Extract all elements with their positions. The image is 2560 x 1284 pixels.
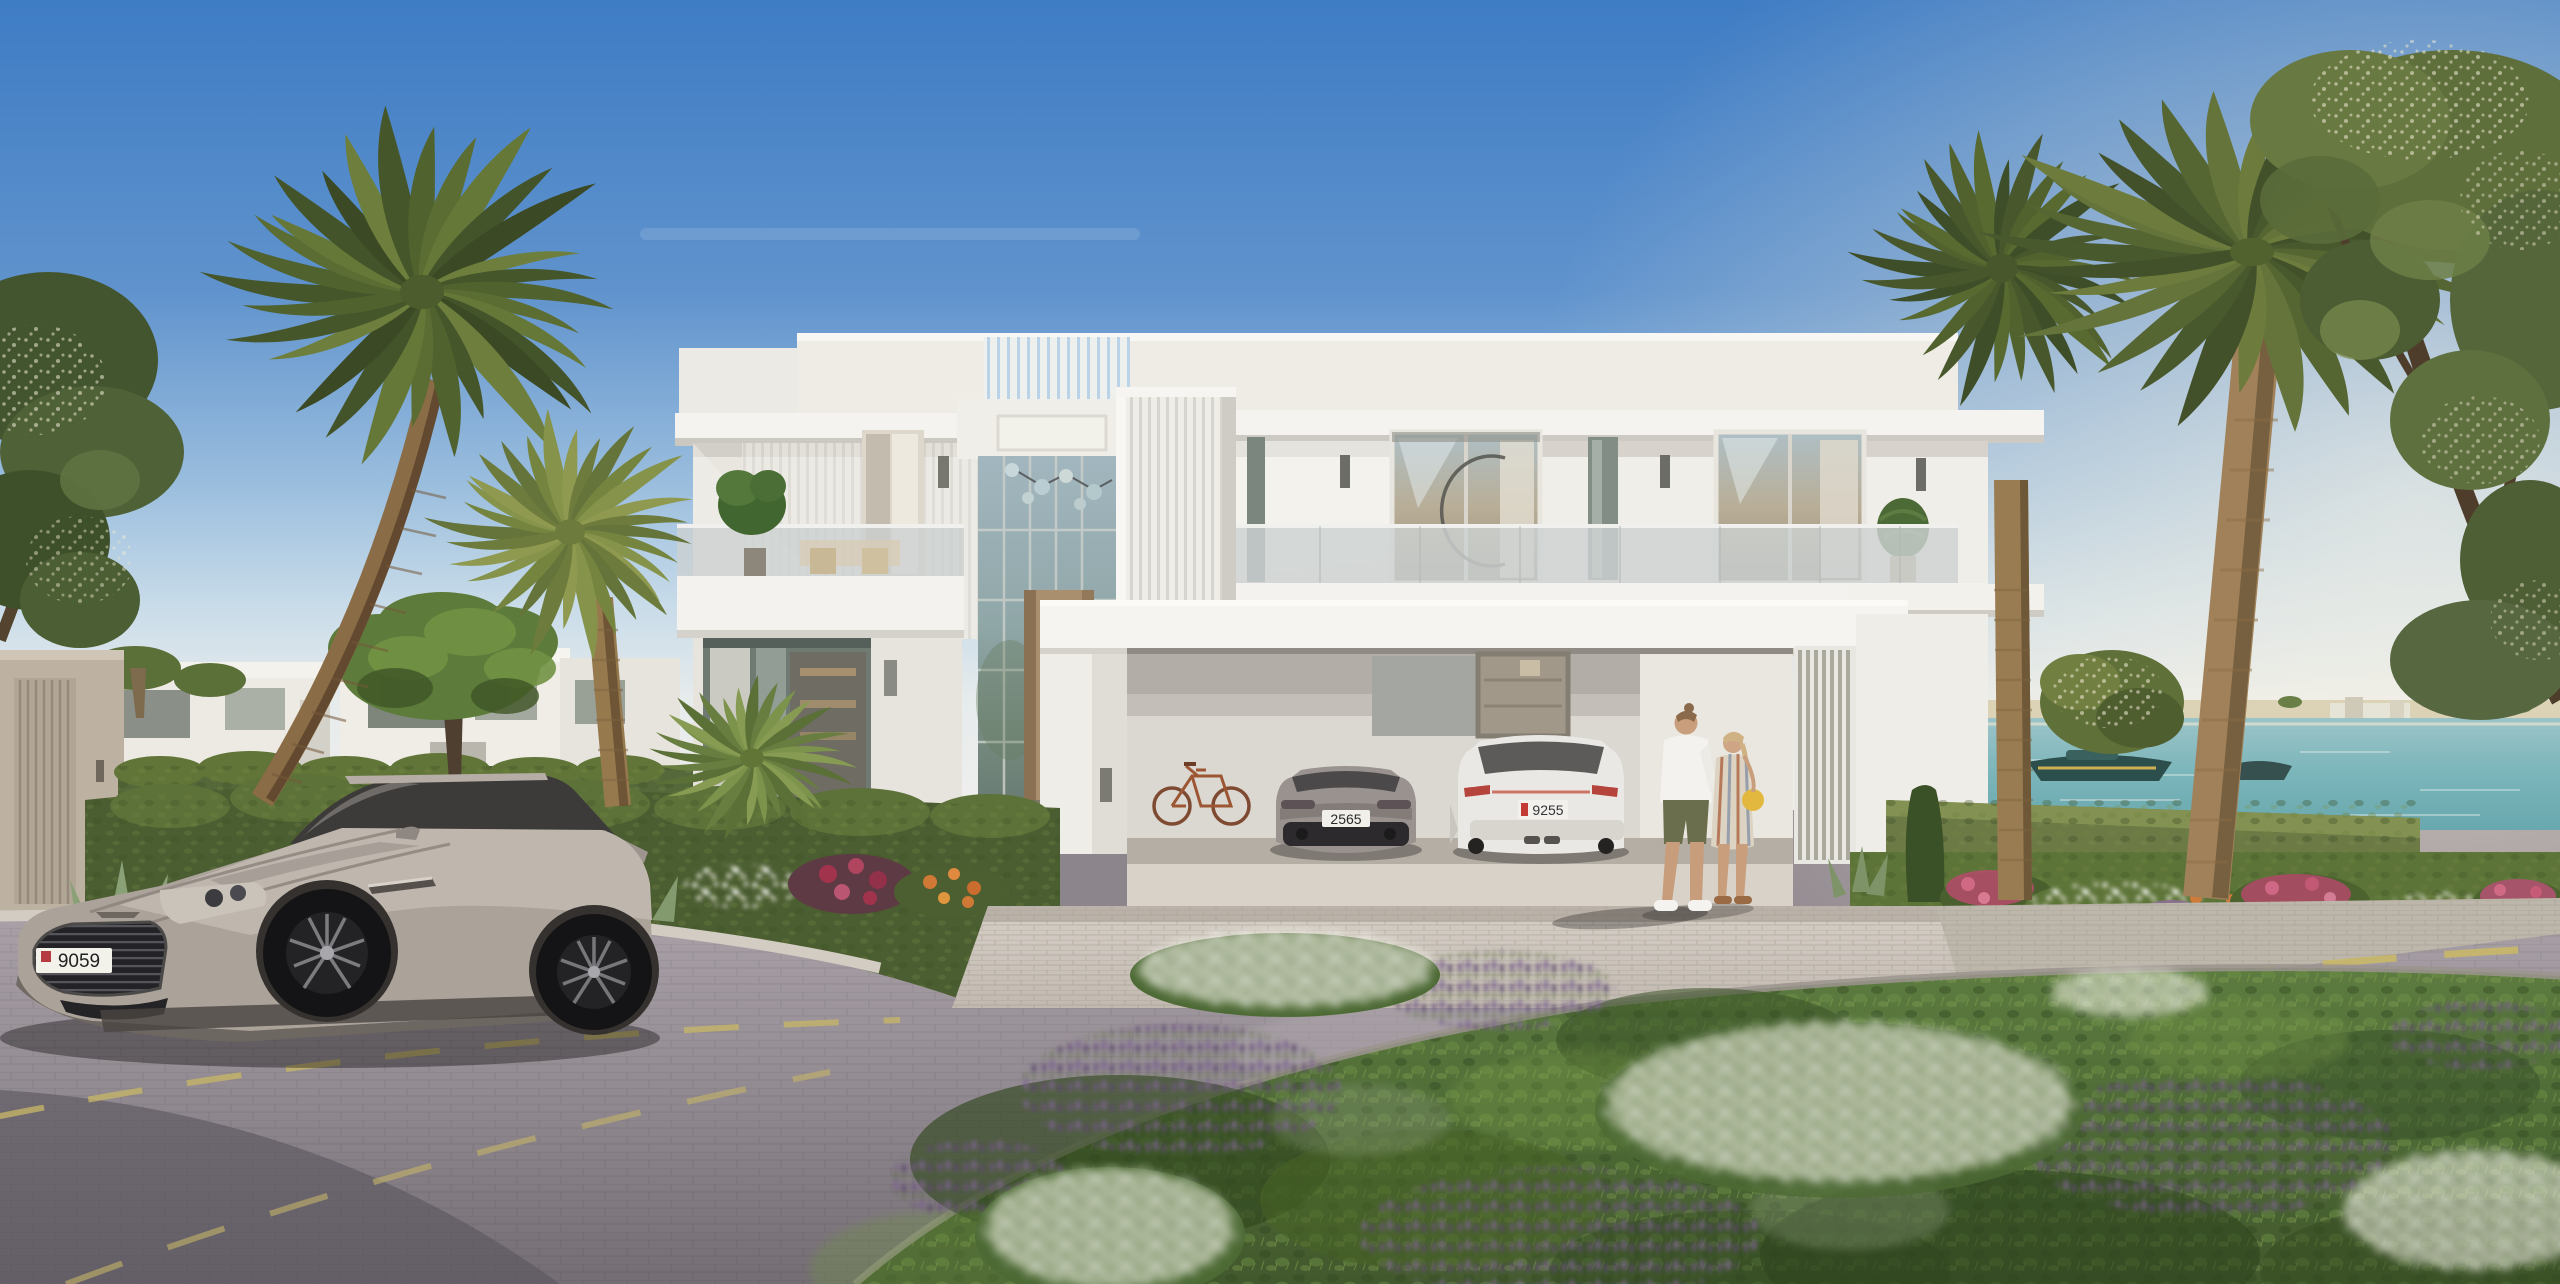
svg-text:2565: 2565 [1330,811,1361,827]
svg-text:9255: 9255 [1532,802,1563,818]
svg-text:9059: 9059 [58,951,100,972]
